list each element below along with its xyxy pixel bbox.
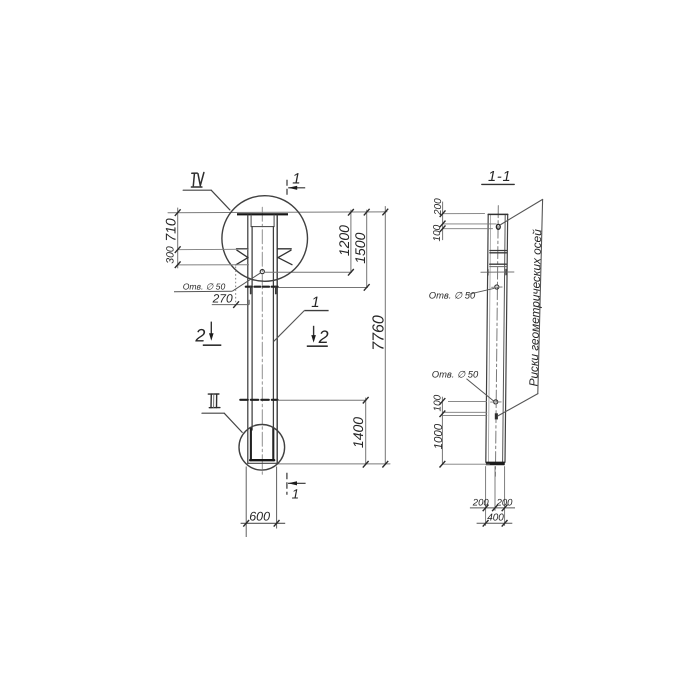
svg-text:1200: 1200 — [336, 225, 352, 256]
svg-text:1: 1 — [292, 486, 300, 501]
svg-text:270: 270 — [212, 292, 233, 306]
svg-text:200: 200 — [472, 497, 490, 508]
svg-text:1400: 1400 — [350, 417, 366, 448]
svg-text:1500: 1500 — [352, 232, 368, 263]
svg-text:200: 200 — [433, 198, 444, 216]
svg-text:710: 710 — [162, 218, 178, 242]
svg-text:2: 2 — [318, 327, 329, 347]
svg-text:1-1: 1-1 — [488, 169, 511, 185]
svg-text:600: 600 — [249, 510, 270, 524]
svg-text:300: 300 — [165, 246, 177, 264]
svg-text:Отв. ∅ 50: Отв. ∅ 50 — [429, 289, 476, 300]
svg-text:200: 200 — [496, 497, 514, 508]
svg-text:2: 2 — [194, 326, 205, 346]
svg-text:400: 400 — [487, 513, 504, 524]
svg-text:1: 1 — [311, 294, 319, 311]
svg-text:1: 1 — [292, 171, 300, 188]
svg-text:Отв. ∅ 50: Отв. ∅ 50 — [432, 368, 479, 379]
svg-text:100: 100 — [433, 394, 444, 411]
svg-text:100: 100 — [432, 224, 443, 241]
svg-text:7760: 7760 — [370, 315, 387, 351]
svg-text:1000: 1000 — [433, 423, 445, 449]
svg-text:Отв. ∅ 50: Отв. ∅ 50 — [183, 281, 226, 291]
